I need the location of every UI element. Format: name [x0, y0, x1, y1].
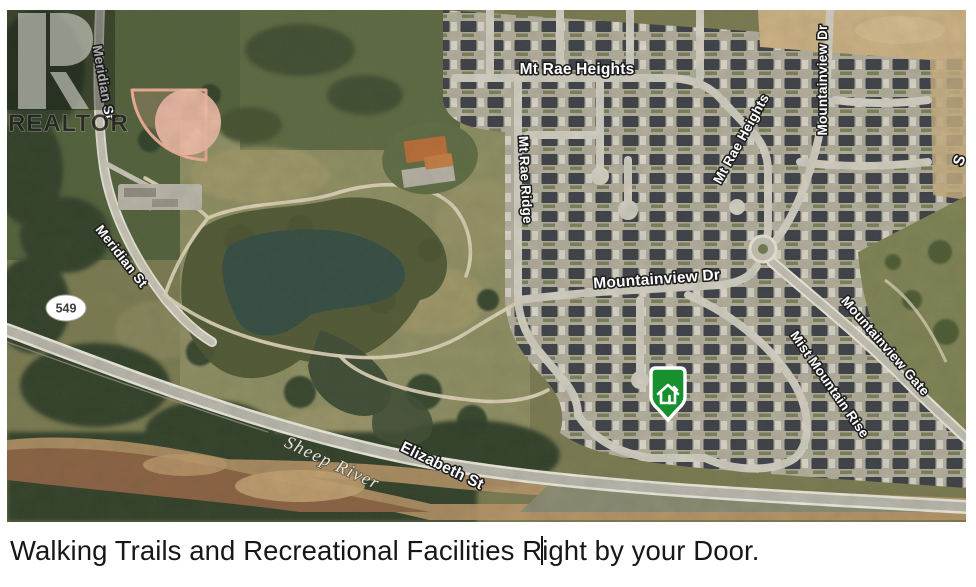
listing-photo-page: Mt Rae Heights Mountainview Dr Mt Rae Ri… [0, 0, 976, 587]
caption-text-after-cursor: ight by your Door. [542, 535, 759, 566]
satellite-map: Mt Rae Heights Mountainview Dr Mt Rae Ri… [7, 10, 966, 522]
highway-549-number: 549 [56, 302, 77, 316]
registered-trademark-symbol: ® [107, 113, 119, 121]
caption-text-before-cursor: Walking Trails and Recreational Faciliti… [10, 535, 542, 566]
street-label-mountainview-dr-vertical: Mountainview Dr [815, 24, 830, 136]
satellite-map-photo[interactable]: Mt Rae Heights Mountainview Dr Mt Rae Ri… [7, 10, 966, 522]
highway-549-shield: 549 [46, 295, 86, 321]
street-label-mt-rae-heights-top: Mt Rae Heights [520, 61, 635, 78]
photo-caption: Walking Trails and Recreational Faciliti… [10, 532, 970, 570]
realtor-watermark: REALTOR ® [7, 10, 129, 137]
